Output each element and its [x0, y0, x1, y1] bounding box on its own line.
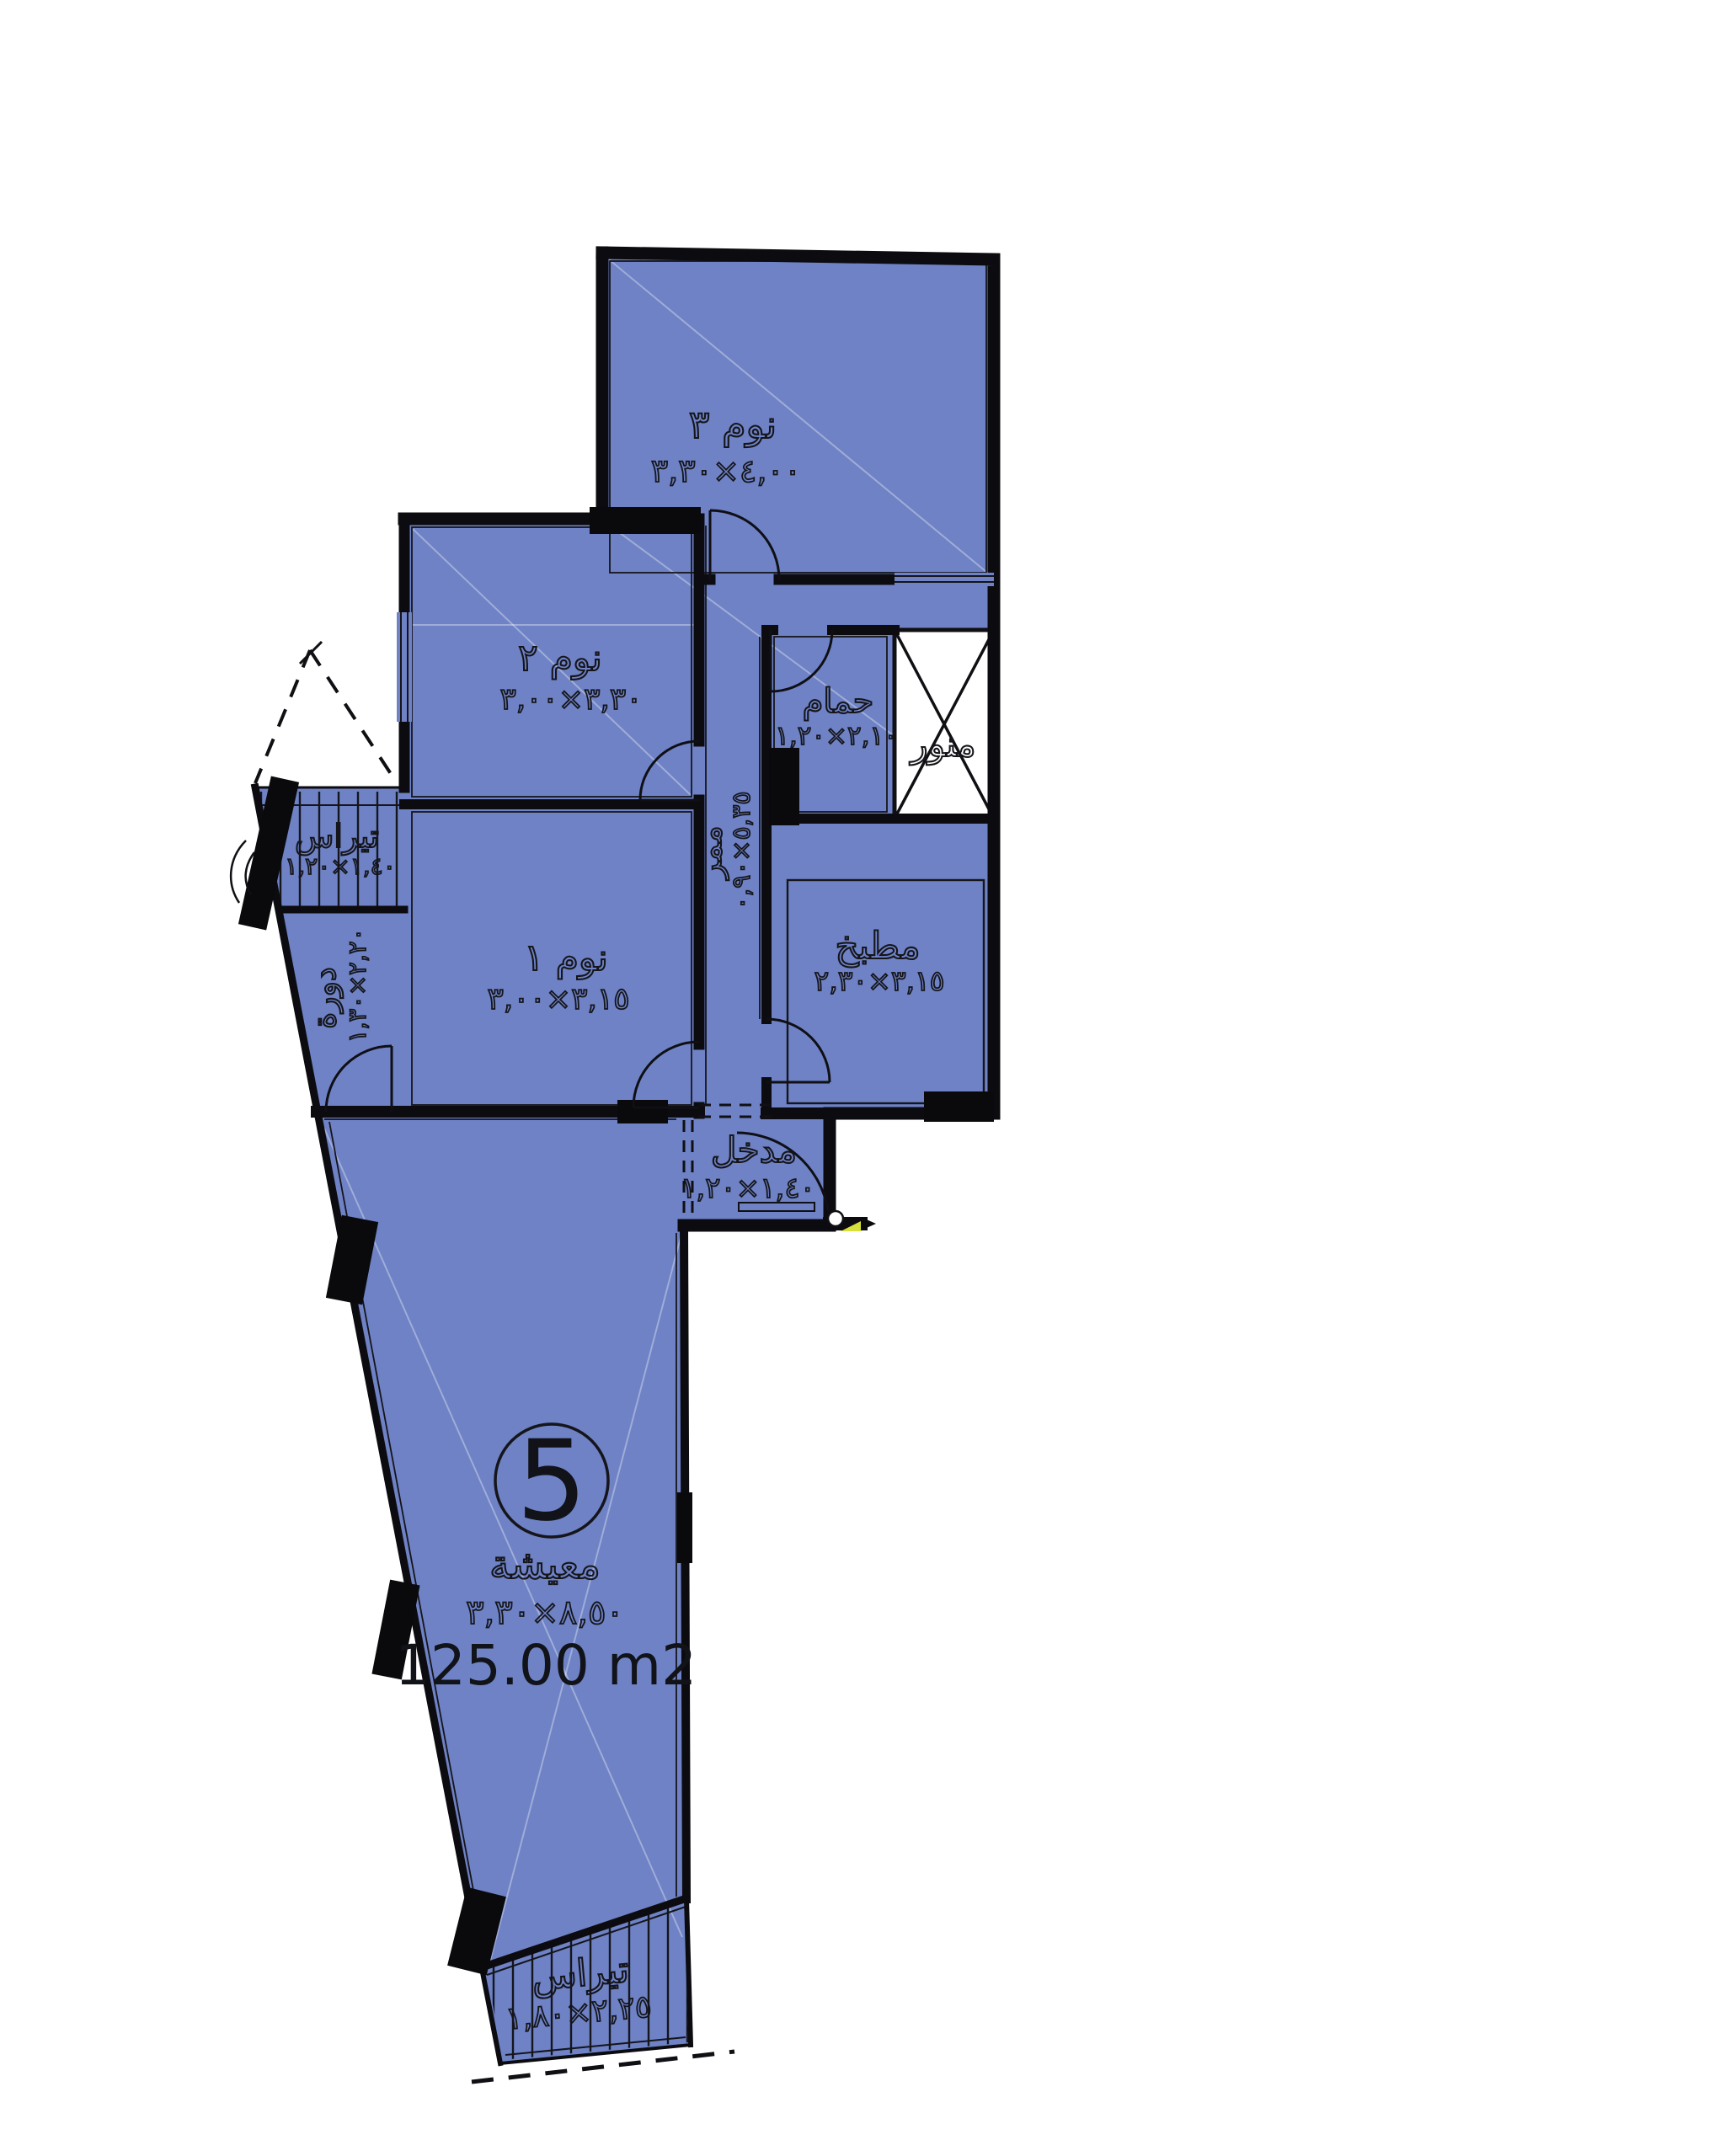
upper-terrace-dims: ١,٤٠×١,٢٠: [285, 852, 396, 880]
bedroom2-window: [397, 612, 412, 722]
unit-number: 5: [516, 1417, 587, 1546]
entrance-label: مدخل: [711, 1129, 797, 1171]
bedroom1-dims: ٣,١٥×٣,٠٠: [487, 982, 629, 1017]
living-dims: ٨,٥٠×٣,٣٠: [466, 1593, 624, 1632]
total-area: 125.00 m2: [395, 1633, 697, 1698]
bedroom3-lightwell-window: [895, 573, 994, 586]
entrance-door-knob: [828, 1211, 843, 1226]
lightwell-label: منور: [909, 723, 975, 765]
entrance-dims: ١,٤٠×١,٢٠: [681, 1171, 815, 1205]
bedroom3-label: نوم ٣: [689, 402, 777, 448]
corridor-label: ممر: [692, 825, 729, 880]
bedroom2-label: نوم ٢: [518, 637, 602, 680]
wc-label: دورة: [306, 967, 344, 1029]
floor-plan-page: نوم ٣ ٤,٠٠×٣,٣٠ نوم ٢ ٣,٣٠×٣,٠٠ حمام ٢,١…: [0, 0, 1709, 2156]
bedroom2-dims: ٣,٣٠×٣,٠٠: [499, 682, 642, 717]
bathroom-dims: ٢,١٠×١,٢٠: [775, 721, 898, 751]
upper-terrace-label: تيراس: [295, 818, 379, 856]
corridor-dims: ٥,٣٥×٠,٩٠: [727, 792, 756, 910]
bedroom3-dims: ٤,٠٠×٣,٣٠: [651, 452, 801, 489]
projection-triangle: [255, 650, 396, 783]
bathroom-label: حمام: [803, 682, 874, 721]
floor-plan-drawing: نوم ٣ ٤,٠٠×٣,٣٠ نوم ٢ ٣,٣٠×٣,٠٠ حمام ٢,١…: [0, 0, 1709, 2156]
wc-dims: ٢,٢٠×١,٣٠: [343, 928, 371, 1043]
living-label: معيشة: [489, 1541, 601, 1588]
kitchen-dims: ٣,١٥×٢,٣٠: [814, 964, 945, 997]
bedroom1-label: نوم ١: [524, 937, 608, 979]
kitchen-label: مطبخ: [835, 925, 920, 968]
